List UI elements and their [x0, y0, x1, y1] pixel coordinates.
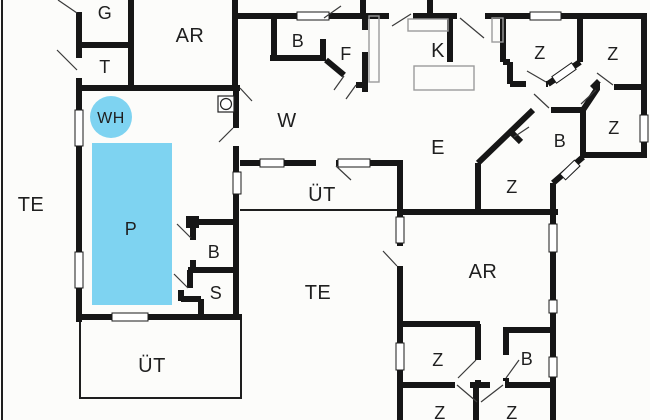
room-label-uet-bottom: ÜT — [138, 355, 166, 377]
room-label-s: S — [210, 283, 223, 303]
room-label-z-se: Z — [432, 350, 444, 370]
kitchen-table — [414, 66, 474, 90]
room-label-w: W — [277, 110, 296, 132]
chimney-block — [186, 216, 199, 228]
kitchen-counter-top — [408, 19, 448, 31]
room-label-te-mid: TE — [305, 282, 332, 304]
room-label-uet-top: ÜT — [308, 184, 336, 206]
room-label-wh: WH — [97, 110, 125, 127]
room-label-z-top-2: Z — [607, 44, 619, 64]
room-label-b-se: B — [521, 349, 534, 369]
room-label-z-top-1: Z — [534, 43, 546, 63]
room-label-e: E — [431, 137, 445, 159]
room-label-b-top: B — [292, 31, 305, 51]
room-label-z-bottom-2: Z — [506, 403, 518, 420]
floor-plan: G T AR B F K Z Z WH W E B Z Z TE P ÜT B … — [0, 0, 650, 420]
room-label-t: T — [99, 57, 111, 77]
room-label-ar-top: AR — [176, 25, 205, 47]
kitchen-counter-tall — [369, 16, 379, 82]
room-label-p: P — [125, 219, 138, 239]
room-label-z-bottom-1: Z — [434, 403, 446, 420]
room-label-b-mid: B — [554, 131, 567, 151]
floor-plan-svg: G T AR B F K Z Z WH W E B Z Z TE P ÜT B … — [0, 0, 650, 420]
room-label-z-right: Z — [608, 118, 620, 138]
room-label-te-left: TE — [18, 194, 45, 216]
room-label-k: K — [431, 40, 445, 62]
room-label-b-pool: B — [208, 242, 221, 262]
room-label-g: G — [98, 3, 113, 23]
room-label-f: F — [340, 44, 352, 64]
room-label-z-mid: Z — [506, 177, 518, 197]
room-label-ar-se: AR — [469, 261, 498, 283]
